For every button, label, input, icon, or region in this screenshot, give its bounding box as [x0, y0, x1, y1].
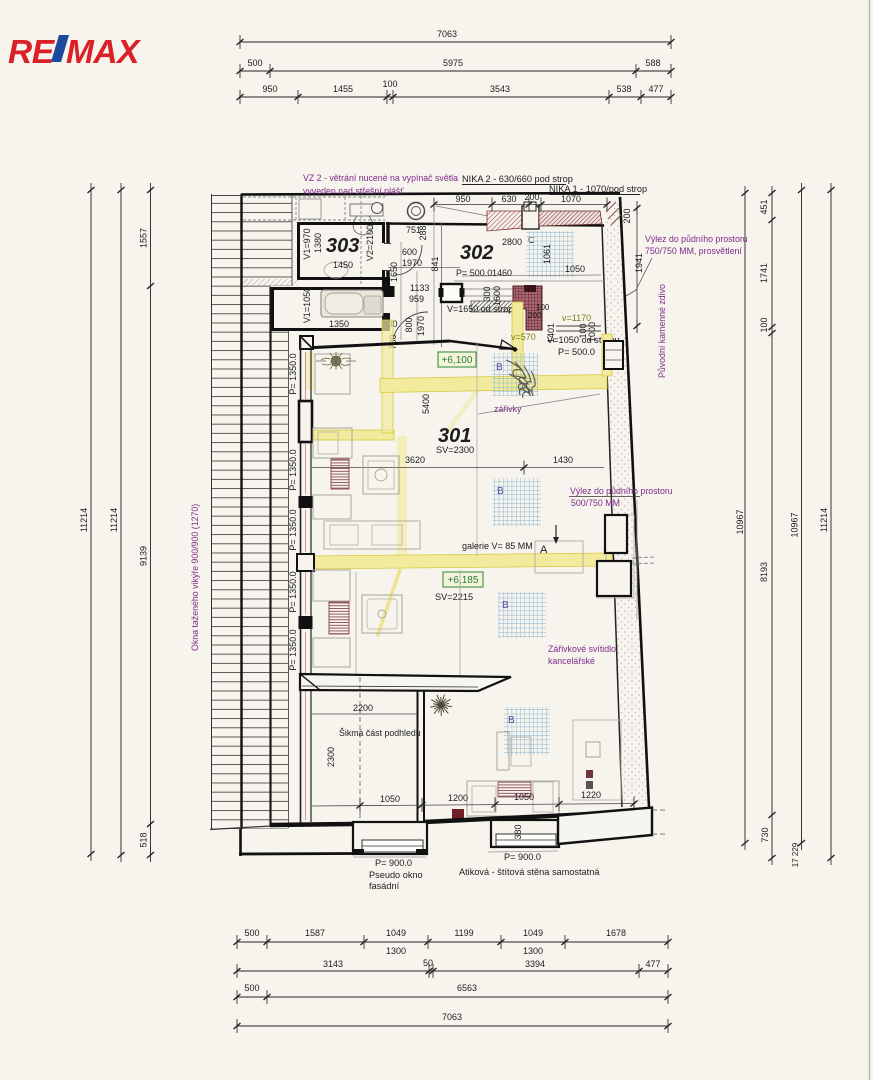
svg-text:1350: 1350: [329, 319, 349, 329]
svg-text:Zářivkové svítidlo: Zářivkové svítidlo: [548, 644, 616, 654]
svg-text:1941: 1941: [634, 253, 644, 273]
svg-text:7063: 7063: [442, 1012, 462, 1022]
svg-text:B: B: [496, 362, 503, 373]
svg-text:1070: 1070: [561, 194, 581, 204]
svg-text:P= 1350.0: P= 1350.0: [288, 353, 298, 394]
svg-text:NIKA 2 - 630/660 pod strop: NIKA 2 - 630/660 pod strop: [462, 174, 573, 184]
svg-text:1450: 1450: [333, 260, 353, 270]
svg-text:1380: 1380: [313, 233, 323, 253]
svg-text:9139: 9139: [139, 546, 149, 566]
svg-text:v=1170: v=1170: [562, 313, 591, 323]
svg-text:500: 500: [244, 928, 259, 938]
svg-text:1050: 1050: [514, 792, 534, 802]
svg-text:2200: 2200: [353, 703, 373, 713]
svg-text:vyveden nad střešní plášť: vyveden nad střešní plášť: [303, 186, 404, 196]
svg-text:800: 800: [404, 317, 414, 332]
svg-text:500/750 MM: 500/750 MM: [571, 498, 620, 508]
svg-text:538: 538: [616, 84, 631, 94]
svg-text:MAX: MAX: [66, 34, 142, 71]
svg-text:v=570: v=570: [511, 332, 536, 342]
svg-text:11214: 11214: [79, 508, 89, 532]
svg-text:+6,185: +6,185: [448, 575, 479, 586]
svg-text:V=1650 od stropu: V=1650 od stropu: [447, 304, 518, 314]
svg-text:1587: 1587: [305, 928, 325, 938]
svg-text:303: 303: [326, 235, 359, 257]
svg-text:Pseudo okno: Pseudo okno: [369, 870, 423, 880]
svg-text:6563: 6563: [457, 983, 477, 993]
svg-text:1455: 1455: [333, 84, 353, 94]
svg-text:500: 500: [247, 58, 262, 68]
svg-text:200: 200: [622, 208, 632, 223]
svg-text:11214: 11214: [819, 508, 829, 532]
svg-text:11214: 11214: [109, 508, 119, 532]
svg-text:2800: 2800: [502, 237, 522, 247]
svg-text:Výlez do půdního prostoru: Výlez do půdního prostoru: [570, 486, 673, 496]
svg-text:50: 50: [423, 958, 433, 968]
svg-text:500: 500: [244, 983, 259, 993]
svg-text:P= 1350.0: P= 1350.0: [288, 571, 298, 612]
svg-text:380: 380: [513, 824, 523, 839]
svg-text:1049: 1049: [523, 928, 543, 938]
svg-text:SV=2215: SV=2215: [435, 592, 473, 602]
svg-text:200: 200: [528, 311, 542, 320]
svg-text:950: 950: [455, 194, 470, 204]
svg-text:518: 518: [139, 832, 149, 847]
svg-text:P= 500.0: P= 500.0: [558, 347, 595, 357]
svg-text:1460: 1460: [492, 268, 512, 278]
svg-text:301: 301: [438, 425, 471, 447]
svg-text:Šikmá část podhledu: Šikmá část podhledu: [339, 728, 421, 738]
svg-text:1430: 1430: [553, 455, 573, 465]
svg-text:P= 900.0: P= 900.0: [375, 858, 412, 868]
svg-text:7063: 7063: [437, 29, 457, 39]
svg-text:V1=1050: V1=1050: [302, 287, 312, 323]
svg-text:288: 288: [418, 225, 428, 240]
svg-text:588: 588: [645, 58, 660, 68]
svg-text:600: 600: [402, 247, 417, 257]
svg-text:10967: 10967: [790, 512, 800, 537]
svg-text:fasádní: fasádní: [369, 881, 400, 891]
svg-text:950: 950: [262, 84, 277, 94]
svg-text:Atiková - štítová stěna samost: Atiková - štítová stěna samostatná: [459, 867, 600, 877]
svg-text:SV=2300: SV=2300: [436, 445, 474, 455]
svg-text:841: 841: [430, 256, 440, 271]
svg-text:P= 1350.0: P= 1350.0: [288, 509, 298, 550]
svg-text:1220: 1220: [581, 790, 601, 800]
svg-text:1061: 1061: [542, 244, 552, 264]
svg-text:5975: 5975: [443, 58, 463, 68]
svg-text:3620: 3620: [405, 455, 425, 465]
svg-text:1300: 1300: [523, 946, 543, 956]
svg-text:1199: 1199: [454, 928, 473, 938]
svg-text:750/750 MM, prosvětlení: 750/750 MM, prosvětlení: [645, 246, 742, 256]
svg-text:100: 100: [382, 79, 397, 89]
svg-text:477: 477: [645, 959, 660, 969]
svg-text:302: 302: [460, 242, 493, 264]
svg-text:959: 959: [409, 294, 424, 304]
svg-text:3394: 3394: [525, 959, 545, 969]
svg-text:B: B: [502, 600, 509, 611]
svg-text:kancelářské: kancelářské: [548, 656, 595, 666]
svg-text:2300: 2300: [326, 747, 336, 767]
svg-text:+6,100: +6,100: [442, 355, 473, 366]
svg-text:galerie V= 85 MM: galerie V= 85 MM: [462, 541, 533, 551]
svg-text:B: B: [508, 715, 515, 726]
svg-text:1050: 1050: [380, 794, 400, 804]
svg-text:1200: 1200: [448, 793, 468, 803]
svg-text:V1=970: V1=970: [302, 228, 312, 259]
svg-text:Okna taženého vikýře 900/900 (: Okna taženého vikýře 900/900 (1270): [190, 504, 200, 651]
svg-text:5400: 5400: [421, 394, 431, 414]
svg-text:VZ 2 - větrání nucené na vypín: VZ 2 - větrání nucené na vypínač světla: [303, 173, 458, 183]
svg-text:200: 200: [524, 192, 539, 202]
svg-text:1970: 1970: [402, 258, 422, 268]
svg-text:V2=2100: V2=2100: [365, 225, 375, 261]
svg-text:1049: 1049: [386, 928, 406, 938]
svg-text:3143: 3143: [323, 959, 343, 969]
svg-text:477: 477: [648, 84, 663, 94]
svg-text:NIKA 1 - 1070/pod strop: NIKA 1 - 1070/pod strop: [549, 184, 647, 194]
svg-text:730: 730: [760, 827, 770, 842]
svg-text:1650: 1650: [389, 262, 399, 282]
svg-text:A: A: [540, 544, 548, 556]
svg-text:1970: 1970: [416, 316, 426, 336]
svg-text:P= 500.0: P= 500.0: [456, 268, 492, 278]
svg-text:1133: 1133: [410, 283, 429, 293]
svg-text:451: 451: [759, 199, 769, 214]
svg-text:B: B: [497, 486, 504, 497]
svg-text:P= 900.0: P= 900.0: [504, 852, 541, 862]
svg-text:8193: 8193: [759, 562, 769, 582]
svg-text:1050: 1050: [565, 264, 585, 274]
svg-text:P= 1350.0: P= 1350.0: [288, 449, 298, 490]
svg-text:10967: 10967: [735, 509, 745, 534]
svg-text:630: 630: [501, 194, 516, 204]
svg-text:1300: 1300: [386, 946, 406, 956]
svg-text:Původní kamenné zdivo: Původní kamenné zdivo: [657, 284, 667, 378]
svg-text:1741: 1741: [759, 263, 769, 283]
svg-text:1678: 1678: [606, 928, 626, 938]
svg-text:P= 1350.0: P= 1350.0: [288, 629, 298, 670]
svg-text:300: 300: [482, 286, 492, 301]
svg-text:17 229: 17 229: [791, 842, 800, 867]
svg-text:1600: 1600: [492, 286, 502, 306]
svg-text:100: 100: [759, 317, 769, 332]
svg-text:1557: 1557: [139, 228, 149, 248]
svg-text:Výlez do půdního prostoru: Výlez do půdního prostoru: [645, 234, 748, 244]
svg-text:RE: RE: [8, 34, 56, 71]
svg-text:3543: 3543: [490, 84, 510, 94]
